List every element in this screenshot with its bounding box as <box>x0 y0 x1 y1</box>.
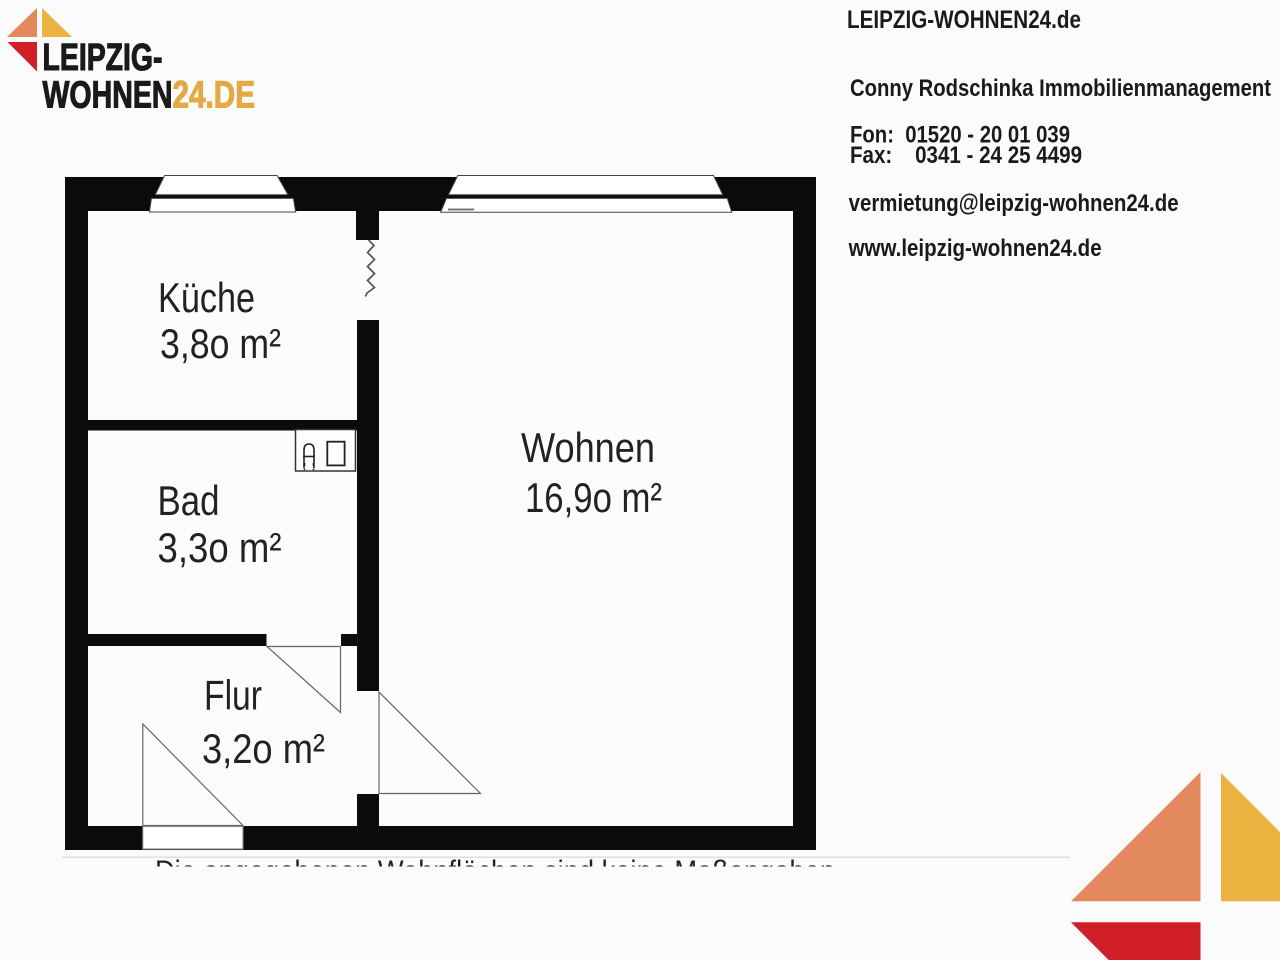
svg-text:3,8o m²: 3,8o m² <box>160 320 281 367</box>
svg-text:16,9o m²: 16,9o m² <box>525 474 662 521</box>
svg-text:Flur: Flur <box>204 672 262 719</box>
svg-text:Fax: 0341 - 24 25 4499: Fax: 0341 - 24 25 4499 <box>850 142 1082 169</box>
svg-text:WOHNEN: WOHNEN <box>43 75 173 117</box>
svg-text:Conny Rodschinka Immobilienman: Conny Rodschinka Immobilienmanagement <box>850 75 1271 102</box>
svg-text:vermietung@leipzig-wohnen24.de: vermietung@leipzig-wohnen24.de <box>849 190 1179 217</box>
svg-text:Wohnen: Wohnen <box>521 424 655 471</box>
svg-text:Bad: Bad <box>158 477 220 524</box>
svg-text:Küche: Küche <box>158 274 255 321</box>
svg-text:LEIPZIG-WOHNEN24.de: LEIPZIG-WOHNEN24.de <box>847 6 1081 34</box>
svg-text:www.leipzig-wohnen24.de: www.leipzig-wohnen24.de <box>848 235 1102 262</box>
svg-text:3,3o m²: 3,3o m² <box>158 524 282 571</box>
svg-text:24.DE: 24.DE <box>173 75 256 117</box>
svg-text:LEIPZIG-: LEIPZIG- <box>43 37 163 79</box>
svg-text:3,2o m²: 3,2o m² <box>202 725 325 772</box>
